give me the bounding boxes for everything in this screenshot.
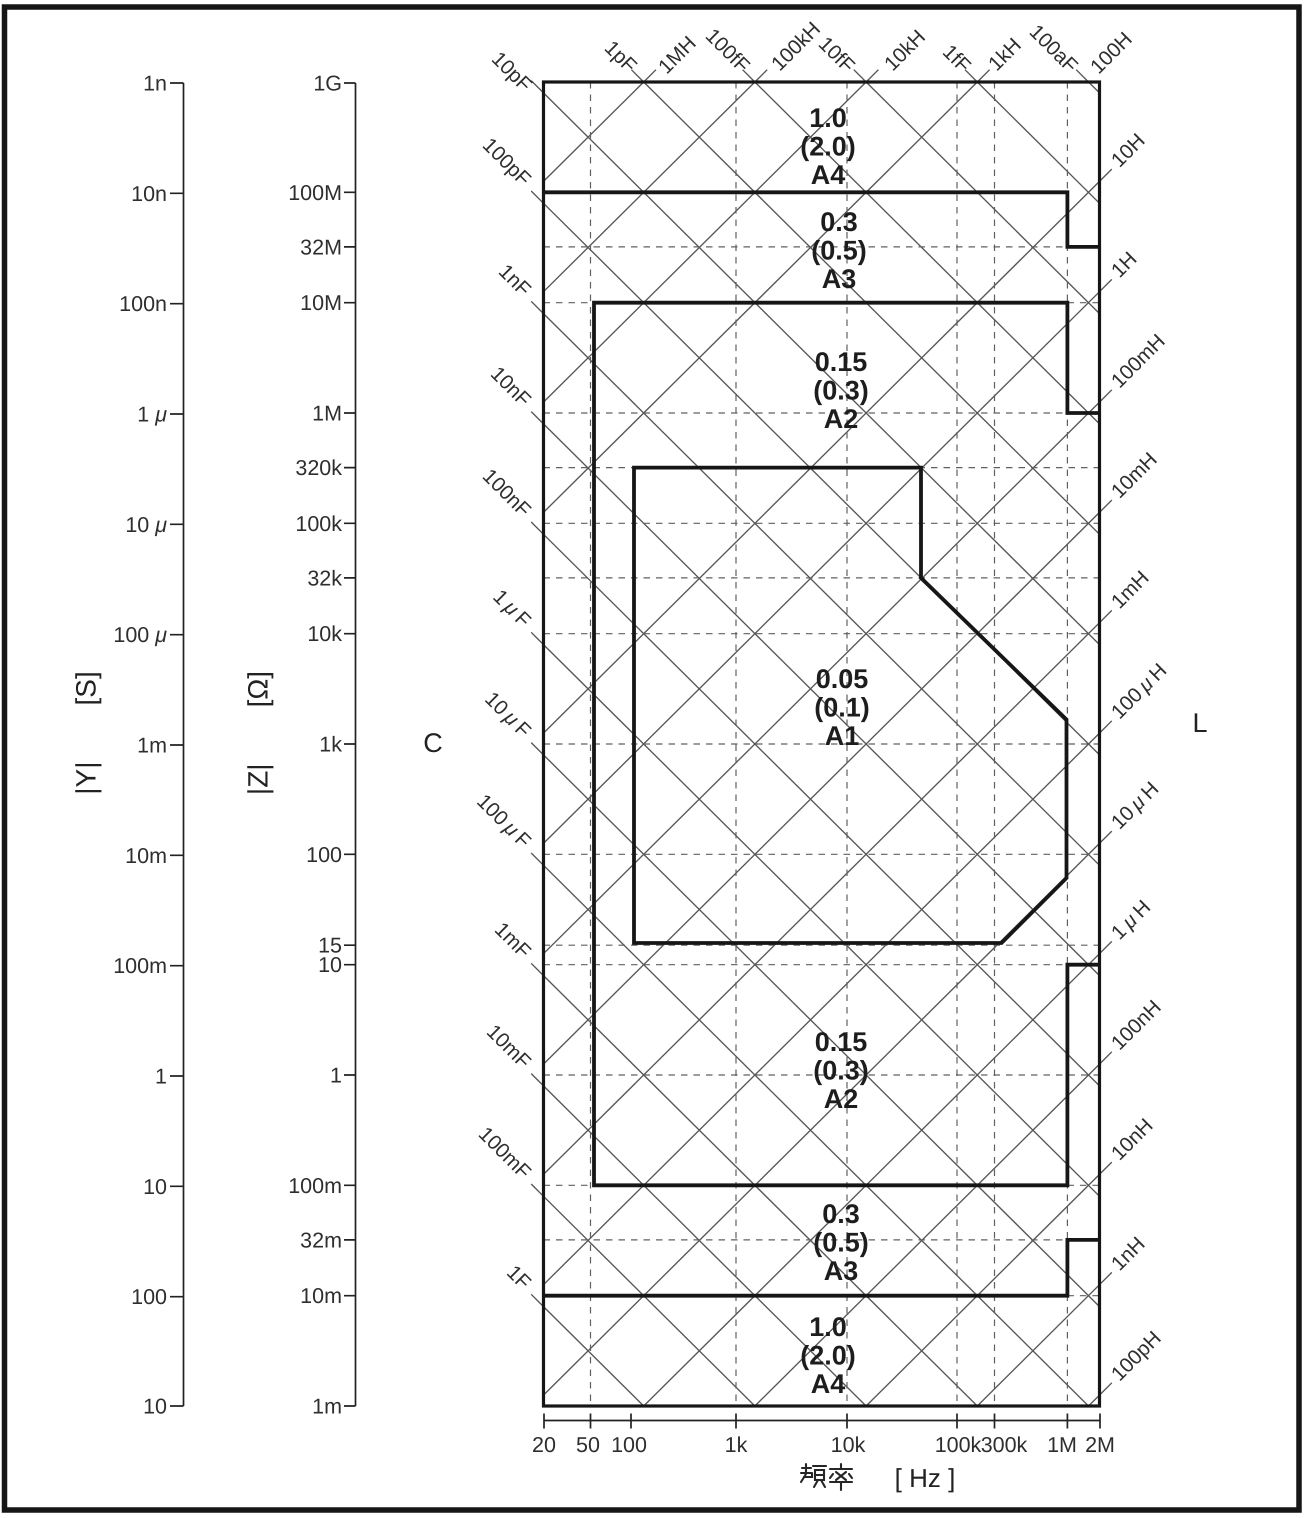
svg-text:[ Hz ]: [ Hz ] — [895, 1463, 956, 1493]
svg-text:10n: 10n — [131, 182, 167, 206]
svg-text:100: 100 — [306, 843, 342, 867]
svg-text:100 μ: 100 μ — [113, 623, 167, 647]
svg-text:1.0: 1.0 — [809, 1312, 847, 1342]
svg-text:A4: A4 — [811, 160, 846, 190]
svg-text:1: 1 — [155, 1065, 167, 1089]
svg-text:1.0: 1.0 — [809, 103, 847, 133]
svg-text:0.3: 0.3 — [822, 1199, 860, 1229]
svg-text:100k: 100k — [295, 512, 342, 536]
svg-text:100M: 100M — [288, 181, 342, 205]
svg-text:100n: 100n — [119, 292, 167, 316]
svg-text:1: 1 — [330, 1064, 342, 1088]
svg-text:1G: 1G — [313, 72, 342, 96]
svg-text:A3: A3 — [824, 1256, 859, 1286]
svg-text:|Y| [S]: |Y| [S] — [71, 671, 102, 794]
svg-text:1m: 1m — [312, 1395, 342, 1419]
svg-text:300k: 300k — [981, 1433, 1028, 1457]
svg-text:32m: 32m — [300, 1228, 342, 1252]
svg-text:2M: 2M — [1085, 1433, 1115, 1457]
svg-text:1M: 1M — [1047, 1433, 1077, 1457]
svg-text:10m: 10m — [300, 1284, 342, 1308]
svg-text:10k: 10k — [307, 622, 342, 646]
svg-text:10: 10 — [318, 953, 342, 977]
svg-text:C: C — [423, 728, 443, 758]
svg-text:A3: A3 — [822, 264, 857, 294]
svg-text:320k: 320k — [295, 456, 342, 480]
svg-text:10: 10 — [143, 1175, 167, 1199]
svg-text:10k: 10k — [831, 1433, 866, 1457]
svg-text:1n: 1n — [143, 72, 167, 96]
svg-text:A2: A2 — [824, 404, 859, 434]
svg-text:0.05: 0.05 — [816, 664, 869, 694]
svg-text:A1: A1 — [825, 721, 860, 751]
svg-text:1M: 1M — [312, 402, 342, 426]
svg-text:100m: 100m — [288, 1174, 342, 1198]
svg-text:0.15: 0.15 — [815, 347, 868, 377]
svg-text:(2.0): (2.0) — [800, 1341, 856, 1371]
svg-text:50: 50 — [576, 1433, 600, 1457]
svg-text:A4: A4 — [811, 1369, 846, 1399]
svg-text:1k: 1k — [319, 733, 342, 757]
svg-text:0.15: 0.15 — [815, 1027, 868, 1057]
svg-text:100m: 100m — [113, 954, 167, 978]
svg-text:1m: 1m — [137, 734, 167, 758]
svg-text:(0.3): (0.3) — [813, 376, 869, 406]
svg-text:L: L — [1192, 708, 1207, 738]
svg-text:32M: 32M — [300, 235, 342, 259]
svg-text:20: 20 — [532, 1433, 556, 1457]
svg-text:(0.5): (0.5) — [811, 236, 867, 266]
svg-text:(0.1): (0.1) — [814, 693, 870, 723]
svg-text:10m: 10m — [125, 844, 167, 868]
svg-text:100: 100 — [131, 1285, 167, 1309]
svg-text:A2: A2 — [824, 1084, 859, 1114]
svg-text:(2.0): (2.0) — [800, 132, 856, 162]
svg-text:|Z| [Ω]: |Z| [Ω] — [243, 671, 274, 795]
svg-text:10M: 10M — [300, 291, 342, 315]
svg-text:100: 100 — [611, 1433, 647, 1457]
svg-text:100k: 100k — [935, 1433, 982, 1457]
svg-text:32k: 32k — [307, 566, 342, 590]
svg-text:10: 10 — [143, 1395, 167, 1419]
svg-text:10 μ: 10 μ — [125, 513, 167, 537]
svg-text:1k: 1k — [725, 1433, 748, 1457]
svg-text:1 μ: 1 μ — [137, 403, 167, 427]
svg-text:(0.3): (0.3) — [813, 1056, 869, 1086]
svg-text:(0.5): (0.5) — [813, 1228, 869, 1258]
svg-text:0.3: 0.3 — [820, 207, 858, 237]
